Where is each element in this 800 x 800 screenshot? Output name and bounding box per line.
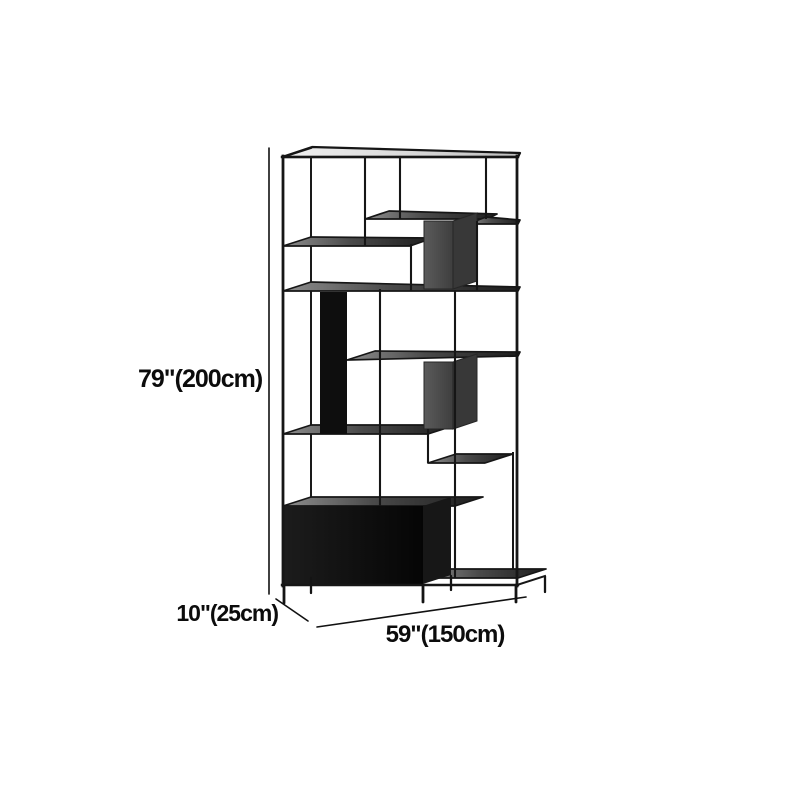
bookshelf-top-shelf <box>282 147 520 157</box>
width-dimension-label: 59"(150cm) <box>381 622 509 647</box>
depth-dimension-label: 10"(25cm) <box>166 601 278 625</box>
depth-dimension-line <box>276 599 308 621</box>
product-dimension-image: 79"(200cm) 10"(25cm) 59"(150cm) <box>0 0 800 800</box>
height-dimension-label: 79"(200cm) <box>138 366 258 392</box>
bookshelf-illustration <box>0 0 800 800</box>
